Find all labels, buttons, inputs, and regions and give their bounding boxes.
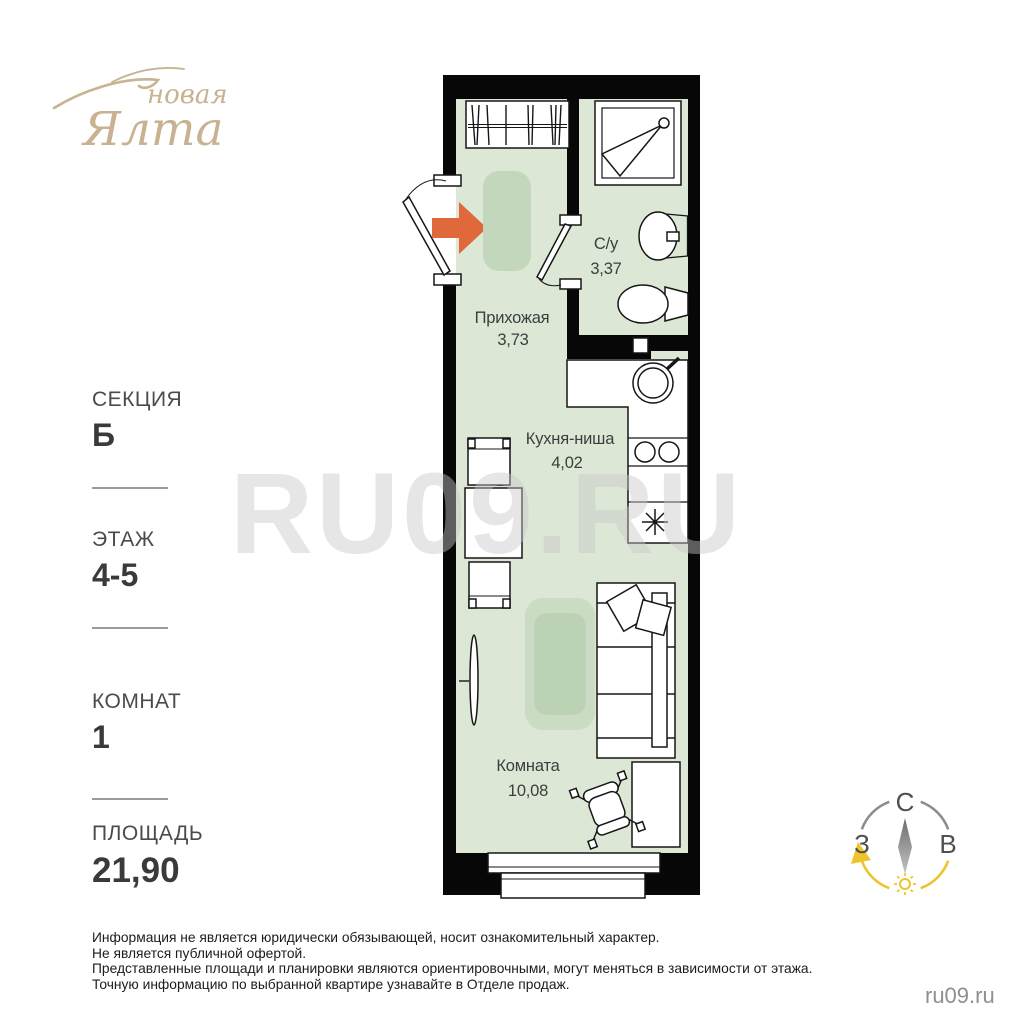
divider [92,627,168,629]
toilet [618,285,688,323]
compass-north-label: С [896,787,915,817]
hallway-mat [483,171,531,271]
section-value: Б [92,417,182,454]
floor-label: ЭТАЖ [92,528,155,552]
area-value: 21,90 [92,851,203,891]
disclaimer-line: Не является публичной офертой. [92,946,812,962]
room-name: Комната [496,757,560,775]
floor-block: ЭТАЖ 4-5 [92,528,155,594]
bathroom-area: 3,37 [590,260,621,278]
vent-shaft [633,338,648,353]
logo-text-bottom: Ялта [83,102,223,157]
room-area: 10,08 [508,782,548,800]
floor-value: 4-5 [92,557,155,594]
kitchen-area: 4,02 [551,454,582,472]
compass-needle [898,818,912,874]
brand-logo: новая Ялта [50,60,310,180]
disclaimer-line: Информация не является юридически обязыв… [92,930,812,946]
area-block: ПЛОЩАДЬ 21,90 [92,822,203,891]
room-rug [525,598,595,730]
section-label: СЕКЦИЯ [92,388,182,412]
wardrobe [466,101,569,148]
divider [92,487,168,489]
bathroom-name: С/у [594,235,619,253]
hallway-name: Прихожая [475,309,550,327]
divider [92,798,168,800]
disclaimer-line: Точную информацию по выбранной квартире … [92,977,812,993]
area-label: ПЛОЩАДЬ [92,822,203,846]
floorplan: Прихожая 3,73 С/у 3,37 Кухня-ниша 4,02 К… [391,75,700,901]
disclaimer-line: Представленные площади и планировки явля… [92,961,812,977]
rooms-value: 1 [92,719,181,756]
hallway-area: 3,73 [497,331,528,349]
shower-cabin [595,101,681,185]
sun-icon [894,873,916,895]
site-watermark: ru09.ru [925,983,995,1009]
compass-west-label: З [854,829,870,859]
section-block: СЕКЦИЯ Б [92,388,182,454]
rooms-label: КОМНАТ [92,690,181,714]
kitchen-name: Кухня-ниша [526,430,615,448]
desk [632,762,680,847]
compass-east-label: В [939,829,956,859]
disclaimer-text: Информация не является юридически обязыв… [92,930,812,992]
compass-icon: С З В [835,772,980,917]
rooms-block: КОМНАТ 1 [92,690,181,756]
sofa [597,583,675,758]
window [488,853,660,898]
